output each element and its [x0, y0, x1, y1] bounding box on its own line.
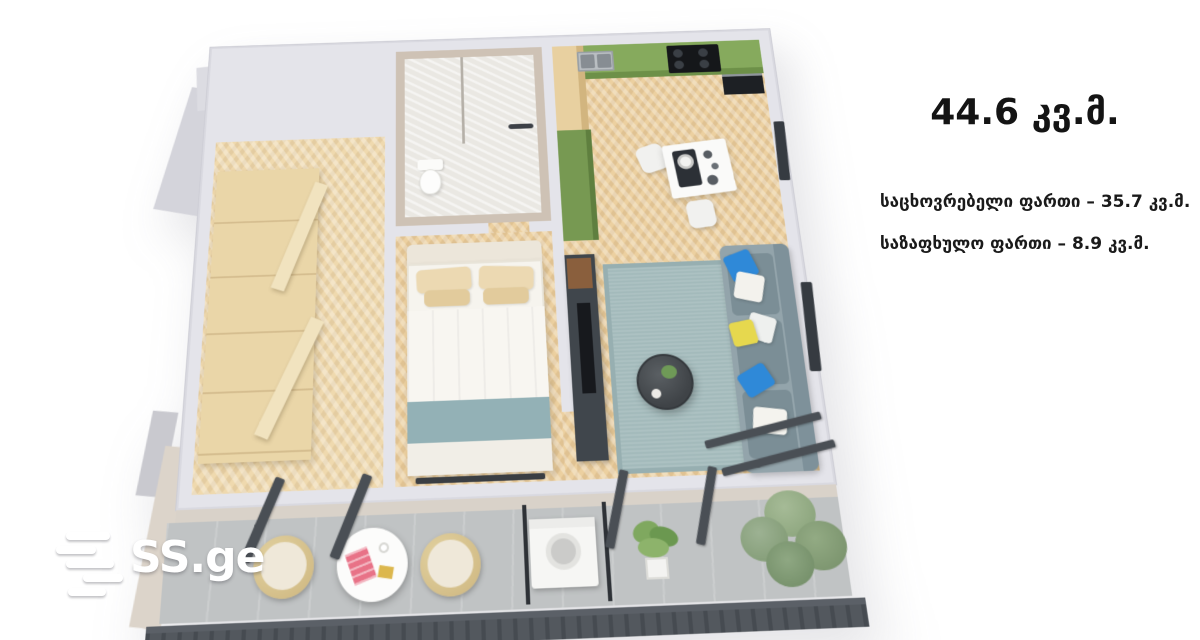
- bed-pillow: [424, 289, 470, 307]
- logo-bars-icon: [56, 546, 96, 554]
- living-area-line: საცხოვრებელი ფართი – 35.7 კვ.მ.: [880, 192, 1190, 212]
- listing-render-image: 44.6 კვ.მ. საცხოვრებელი ფართი – 35.7 კვ.…: [0, 0, 1200, 640]
- toilet-bowl: [419, 169, 441, 195]
- bed-throw-blanket: [407, 397, 551, 444]
- logo-text: SS.ge: [130, 532, 264, 583]
- watermark-logo: SS.ge: [50, 526, 270, 606]
- logo-bars-icon: [83, 574, 123, 582]
- kitchen-sink: [577, 51, 615, 72]
- burner: [699, 60, 710, 69]
- book: [345, 546, 377, 585]
- cup: [651, 389, 662, 399]
- plant-pot: [645, 557, 670, 580]
- cooktop: [666, 44, 721, 73]
- sofa-pillow-white: [733, 271, 765, 303]
- fern-leaf: [638, 538, 669, 558]
- mug: [379, 542, 389, 553]
- oven: [722, 73, 765, 95]
- towel-bar: [508, 123, 533, 129]
- sink-bowl: [580, 54, 595, 68]
- kitchen-tall-cabinet: [557, 129, 599, 241]
- table-plant: [661, 365, 678, 379]
- room-bathroom: [396, 47, 552, 226]
- burner: [698, 48, 709, 57]
- vase: [706, 174, 719, 185]
- logo-bars-icon: [68, 588, 106, 596]
- potted-fern: [628, 520, 685, 583]
- dining-table: [661, 138, 737, 199]
- washing-machine: [529, 517, 599, 589]
- bed-foot: [407, 438, 553, 476]
- serving-tray: [672, 149, 703, 188]
- rattan-chair: [420, 532, 481, 598]
- sink-bowl: [597, 54, 612, 68]
- room-bedroom: [395, 231, 565, 487]
- large-plant: [735, 488, 856, 598]
- storage-box: [566, 258, 592, 289]
- vase: [702, 150, 713, 159]
- washer-drum: [545, 532, 582, 570]
- burner: [674, 60, 684, 69]
- bed-duvet: [407, 306, 549, 402]
- vase: [711, 162, 720, 169]
- logo-bars-icon: [66, 560, 114, 568]
- bed-pillow: [479, 266, 534, 290]
- room-wardrobe: [192, 137, 385, 495]
- plate: [676, 153, 695, 170]
- summer-area-line: საზაფხულო ფართი – 8.9 კვ.მ.: [880, 234, 1150, 254]
- washer-panel: [529, 517, 595, 529]
- bathroom-door-opening: [488, 222, 529, 234]
- chair-cushion: [427, 539, 474, 589]
- burner: [673, 49, 683, 58]
- dining-chair: [685, 198, 718, 229]
- bed-pillow: [483, 287, 529, 305]
- notebook: [378, 565, 394, 579]
- total-area-title: 44.6 კვ.მ.: [900, 92, 1150, 133]
- pipe: [460, 57, 465, 143]
- logo-bars-icon: [66, 532, 110, 540]
